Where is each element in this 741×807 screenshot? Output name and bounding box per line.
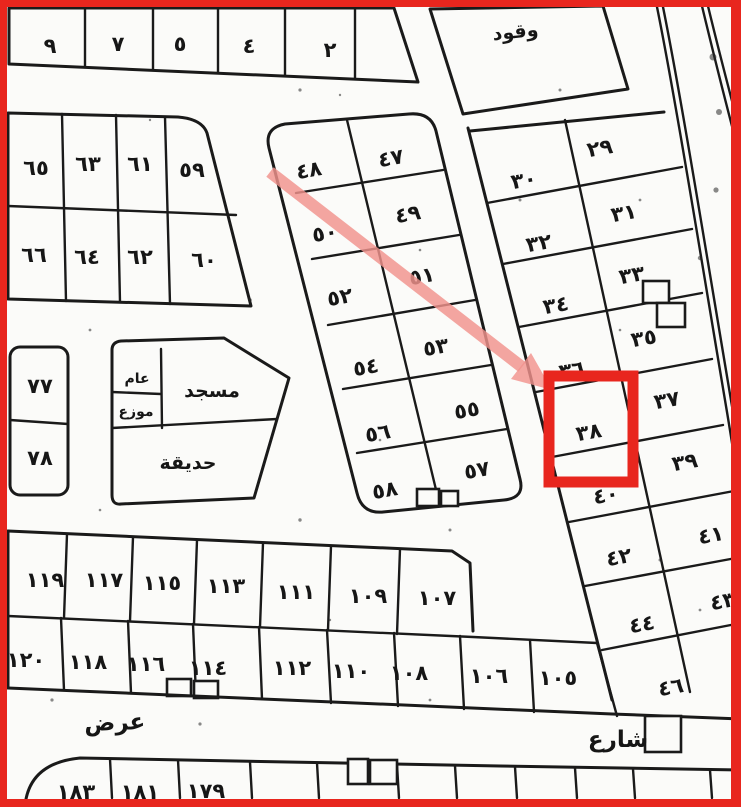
west-block: ٦٥ ٦٣ ٦١ ٥٩ ٦٦ ٦٤ ٦٢ ٦٠: [8, 113, 251, 306]
plot-label: ١١٣: [207, 574, 246, 598]
border-bottom: [0, 799, 741, 807]
plot-label: ٥٩: [179, 158, 205, 182]
plot-label: ١١٠: [332, 659, 370, 683]
plot-label: ٥٢: [325, 283, 355, 311]
utility-cell-label: عام: [124, 371, 149, 387]
map-canvas: ٩ ٧ ٥ ٤ ٢ وقود ٦٥ ٦٣ ٦١ ٥٩ ٦٦ ٦٤ ٦٢ ٦٠: [0, 0, 741, 807]
plot-label: ٣٩: [670, 448, 700, 476]
boundary-notch: [348, 759, 368, 784]
plot-label: ١٠٧: [418, 586, 457, 610]
plot-label: ١٠٦: [470, 664, 509, 688]
plot-label: ١١١: [277, 580, 315, 604]
border-top: [0, 0, 741, 7]
plot-label: ٢: [324, 38, 337, 62]
plots-77-78-block: ٧٧ ٧٨: [10, 347, 68, 495]
plot-label: ٤٤: [627, 610, 656, 638]
plot-label: ٣٧: [652, 386, 682, 414]
fuel-station-plot: وقود: [430, 6, 628, 114]
plot-label: ٣٤: [541, 291, 570, 319]
plot-label: ٦٠: [191, 248, 217, 272]
plot-label: ٥٥: [452, 396, 481, 424]
north-row-outline: [9, 8, 418, 82]
boundary-notch: [441, 491, 458, 506]
boundary-notch: [643, 281, 669, 303]
plot-label: ٣٣: [617, 261, 647, 289]
plot-label: ٦١: [127, 152, 153, 176]
plot-label: ٣١: [609, 199, 638, 227]
boundary-notch: [370, 760, 397, 784]
highlighted-plot-label: ٣٨: [574, 418, 604, 446]
plot-label: ٦٤: [74, 245, 100, 269]
plot-label: ٧٧: [27, 374, 53, 398]
plot-label: ٤١: [696, 521, 725, 549]
street-name-west: عرض: [84, 709, 146, 737]
boundary-notch: [417, 489, 439, 506]
north-row-block: ٩ ٧ ٥ ٤ ٢: [9, 8, 418, 82]
mosque-label: مسجد: [184, 380, 240, 402]
central-block: ٤٨ ٤٧ ٥٠ ٤٩ ٥٢ ٥١ ٥٤ ٥٣ ٥٦ ٥٥ ٥٨ ٥٧: [268, 114, 521, 512]
plot-label: ١٢٠: [7, 648, 45, 672]
south-edge-row: ١٨٣ ١٨١ ١٧٩: [57, 759, 712, 804]
plot-label: ٥٤: [351, 353, 380, 381]
scanned-plot-map: ٩ ٧ ٥ ٤ ٢ وقود ٦٥ ٦٣ ٦١ ٥٩ ٦٦ ٦٤ ٦٢ ٦٠: [0, 0, 741, 807]
south-block: ١١٩ ١١٧ ١١٥ ١١٣ ١١١ ١٠٩ ١٠٧ ١٢٠ ١١٨ ١١٦ …: [7, 531, 617, 716]
plot-label: ٤٨: [294, 156, 324, 184]
plot-label: ٥٣: [421, 333, 451, 361]
plot-label: ٦٦: [21, 243, 47, 267]
plot-label: ١١٨: [69, 650, 108, 674]
south-street: عرض شارع: [8, 688, 741, 806]
garden-label: حديقة: [160, 452, 217, 474]
plot-label: ٣٠: [509, 166, 538, 194]
plot-label: ٣٥: [629, 324, 658, 352]
street-notch: [645, 716, 681, 752]
plot-label: ٢٩: [585, 134, 615, 162]
plot-label: ٤٧: [376, 144, 406, 172]
plot-label: ١١٧: [85, 568, 124, 592]
plot-label: ١٠٩: [349, 584, 388, 608]
plot-label: ١١٦: [127, 652, 166, 676]
fuel-label: وقود: [491, 19, 539, 46]
plot-label: ٥٨: [370, 476, 400, 504]
plot-label: ٤٢: [604, 543, 634, 571]
plot-label: ٤٦: [656, 673, 686, 701]
plot-label: ١١٩: [26, 568, 65, 592]
border-left: [0, 0, 7, 807]
plot-label: ٩: [44, 34, 57, 58]
plot-label: ١١٤: [189, 656, 227, 680]
plot-label: ٧٨: [27, 446, 53, 470]
plot-label: ٤٩: [393, 200, 423, 228]
plot-label: ٥٦: [363, 419, 393, 447]
border-right: [731, 0, 741, 807]
plot-label: ٤: [243, 34, 256, 58]
boundary-notch: [167, 679, 191, 696]
plot-label: ١٠٨: [390, 661, 429, 685]
plot-label: ١١٥: [143, 571, 181, 595]
boundary-notch: [657, 303, 685, 327]
plot-label: ٦٢: [127, 245, 153, 269]
plot-label: ٥: [174, 32, 187, 56]
street-name-south: شارع: [588, 727, 648, 753]
plot-label: ٧: [112, 32, 125, 56]
plot-label: ٣٢: [524, 229, 554, 257]
mosque-garden-block: عام موزع مسجد حديقة: [112, 338, 289, 504]
pointer-arrow-shaft: [270, 172, 522, 367]
plot-label: ٦٥: [23, 156, 49, 180]
plot-label: ٥٧: [462, 456, 492, 484]
plot-label: ١٠٥: [539, 666, 577, 690]
utility-cell-label: موزع: [118, 404, 153, 420]
plot-label: ٦٣: [75, 152, 101, 176]
plot-label: ١١٢: [273, 656, 312, 680]
diagonal-street-lines: [656, 2, 741, 498]
